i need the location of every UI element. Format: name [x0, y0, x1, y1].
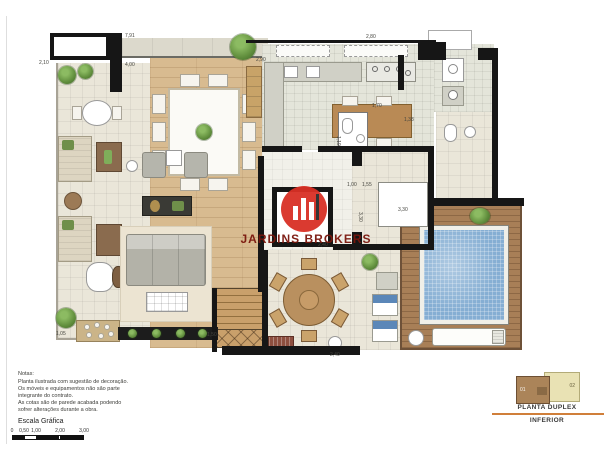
dining-chair [180, 74, 200, 87]
gourmet-chair [301, 258, 317, 270]
gourmet-chair [301, 330, 317, 342]
planter-greens [128, 329, 137, 338]
coffee-table [146, 292, 188, 312]
indoor-tree [230, 34, 256, 60]
notes-line: Os móveis e equipamentos não são parte [18, 386, 188, 393]
overhead-cabinet [276, 45, 330, 57]
side-table [96, 224, 122, 256]
bar-stool [108, 331, 114, 337]
dining-chair [152, 122, 166, 142]
wall [212, 288, 217, 352]
key-plan: 02 01 [516, 370, 580, 404]
deck-chair [372, 294, 398, 316]
bar-stool [84, 324, 90, 330]
floorplan-page: JARDINS BROKERS 7,914,002,102,902,801,70… [0, 0, 613, 460]
kitchen-chair [376, 96, 392, 106]
toilet [342, 118, 353, 134]
notes-line: sofrer alterações durante a obra. [18, 407, 188, 414]
terrace-table [82, 100, 112, 126]
dining-chair [208, 178, 228, 191]
lounger-pillow [492, 330, 504, 344]
pouf [64, 192, 82, 210]
curved-armchair [86, 262, 114, 292]
key-plan-unit-02-label: 02 [569, 383, 575, 389]
kitchen-sink [284, 66, 298, 78]
side-terrace-table [376, 272, 398, 290]
logo-bar [293, 206, 298, 220]
wall [418, 42, 446, 60]
kitchen-counter-l [264, 62, 284, 148]
round-tray-table [126, 160, 138, 172]
bathroom-sink [464, 126, 476, 138]
toilet [444, 124, 457, 142]
deck-chair [372, 320, 398, 342]
kitchen-chair [342, 96, 358, 106]
void-box [50, 33, 110, 60]
stove-burner [372, 66, 378, 72]
bar-stool [86, 332, 92, 338]
notes-line: integrante do contrato. [18, 393, 188, 400]
brand-name: JARDINS BROKERS [240, 232, 372, 246]
stove-burner [384, 66, 390, 72]
bathroom-sink [356, 134, 365, 143]
deck-plant [470, 208, 490, 224]
plan-title: PLANTA DUPLEX [487, 404, 607, 411]
kitchen-sink [306, 66, 320, 78]
notes-title: Notas: [18, 371, 188, 378]
logo-bar [301, 198, 306, 220]
stove-burner [405, 70, 411, 76]
potted-plant [78, 64, 93, 79]
scale-label: Escala Gráfica [18, 418, 64, 425]
scale-segment [13, 436, 25, 439]
scale-tick: 3,00 [79, 428, 89, 434]
wall [262, 146, 302, 152]
wall [222, 346, 360, 355]
dining-chair [208, 74, 228, 87]
scale-tick: 2,00 [55, 428, 65, 434]
watermark: JARDINS BROKERS [240, 186, 372, 248]
wall [398, 55, 404, 90]
scale-tick-labels: 00,501,002,003,00 [12, 428, 102, 434]
wall [262, 250, 268, 352]
notes-block: Notas: Planta ilustrada com sugestão de … [18, 371, 188, 414]
scale-tick: 0 [11, 428, 14, 434]
dining-chair [152, 94, 166, 114]
table-centerpiece [196, 124, 212, 140]
terrace-chair [112, 106, 122, 120]
notes-line: Planta ilustrada com sugestão de decoraç… [18, 379, 188, 386]
armchair [142, 152, 166, 178]
laundry-tank-basin [448, 90, 458, 100]
plan-subtitle: INFERIOR [487, 417, 607, 424]
elevator-shaft [378, 182, 428, 227]
potted-plant [58, 66, 76, 84]
page-edge-line [6, 16, 7, 444]
bar-stool [104, 324, 110, 330]
wall [246, 40, 436, 43]
wall [110, 33, 122, 92]
notes-line: As cotas são de parede acabada podendo [18, 400, 188, 407]
staircase [216, 288, 266, 330]
pantry-cabinet [246, 66, 262, 118]
wall [318, 146, 434, 152]
wall [352, 152, 362, 166]
scale-tick: 0,50 [19, 428, 29, 434]
scale-segment [36, 436, 59, 439]
scale-bar [12, 435, 84, 440]
scale-segment [25, 436, 37, 439]
terrace-chair [72, 106, 82, 120]
key-plan-unit-01: 01 [516, 376, 550, 404]
planter-greens [198, 329, 207, 338]
title-divider [492, 413, 604, 415]
dimension-label: 2,10 [39, 60, 49, 66]
bar-stool [98, 333, 104, 339]
dining-chair [180, 178, 200, 191]
side-table [166, 150, 182, 166]
deck-round-table [408, 330, 424, 346]
coffee-table-decor [172, 201, 184, 211]
key-plan-unit-01-label: 01 [520, 387, 526, 393]
dining-chair [242, 122, 256, 142]
lounge-cushion [62, 220, 74, 230]
lounge-cushion [62, 140, 74, 150]
side-table-decor [104, 150, 112, 164]
washing-machine-door [448, 64, 458, 74]
key-plan-unit-01-core [537, 387, 547, 395]
dining-chair [242, 150, 256, 170]
brand-logo-icon [281, 186, 327, 232]
logo-bar [309, 202, 314, 220]
armchair [184, 152, 208, 178]
scale-tick: 1,00 [31, 428, 41, 434]
planter-greens [176, 329, 185, 338]
planter-greens [152, 329, 161, 338]
logo-bar [316, 194, 319, 220]
round-table-center [299, 290, 319, 310]
sofa [126, 234, 206, 286]
bar-stool [94, 322, 100, 328]
potted-plant [362, 254, 378, 270]
potted-plant [56, 308, 76, 328]
scale-segment [59, 436, 83, 439]
wall [492, 50, 498, 200]
coffee-table-decor [150, 200, 160, 212]
